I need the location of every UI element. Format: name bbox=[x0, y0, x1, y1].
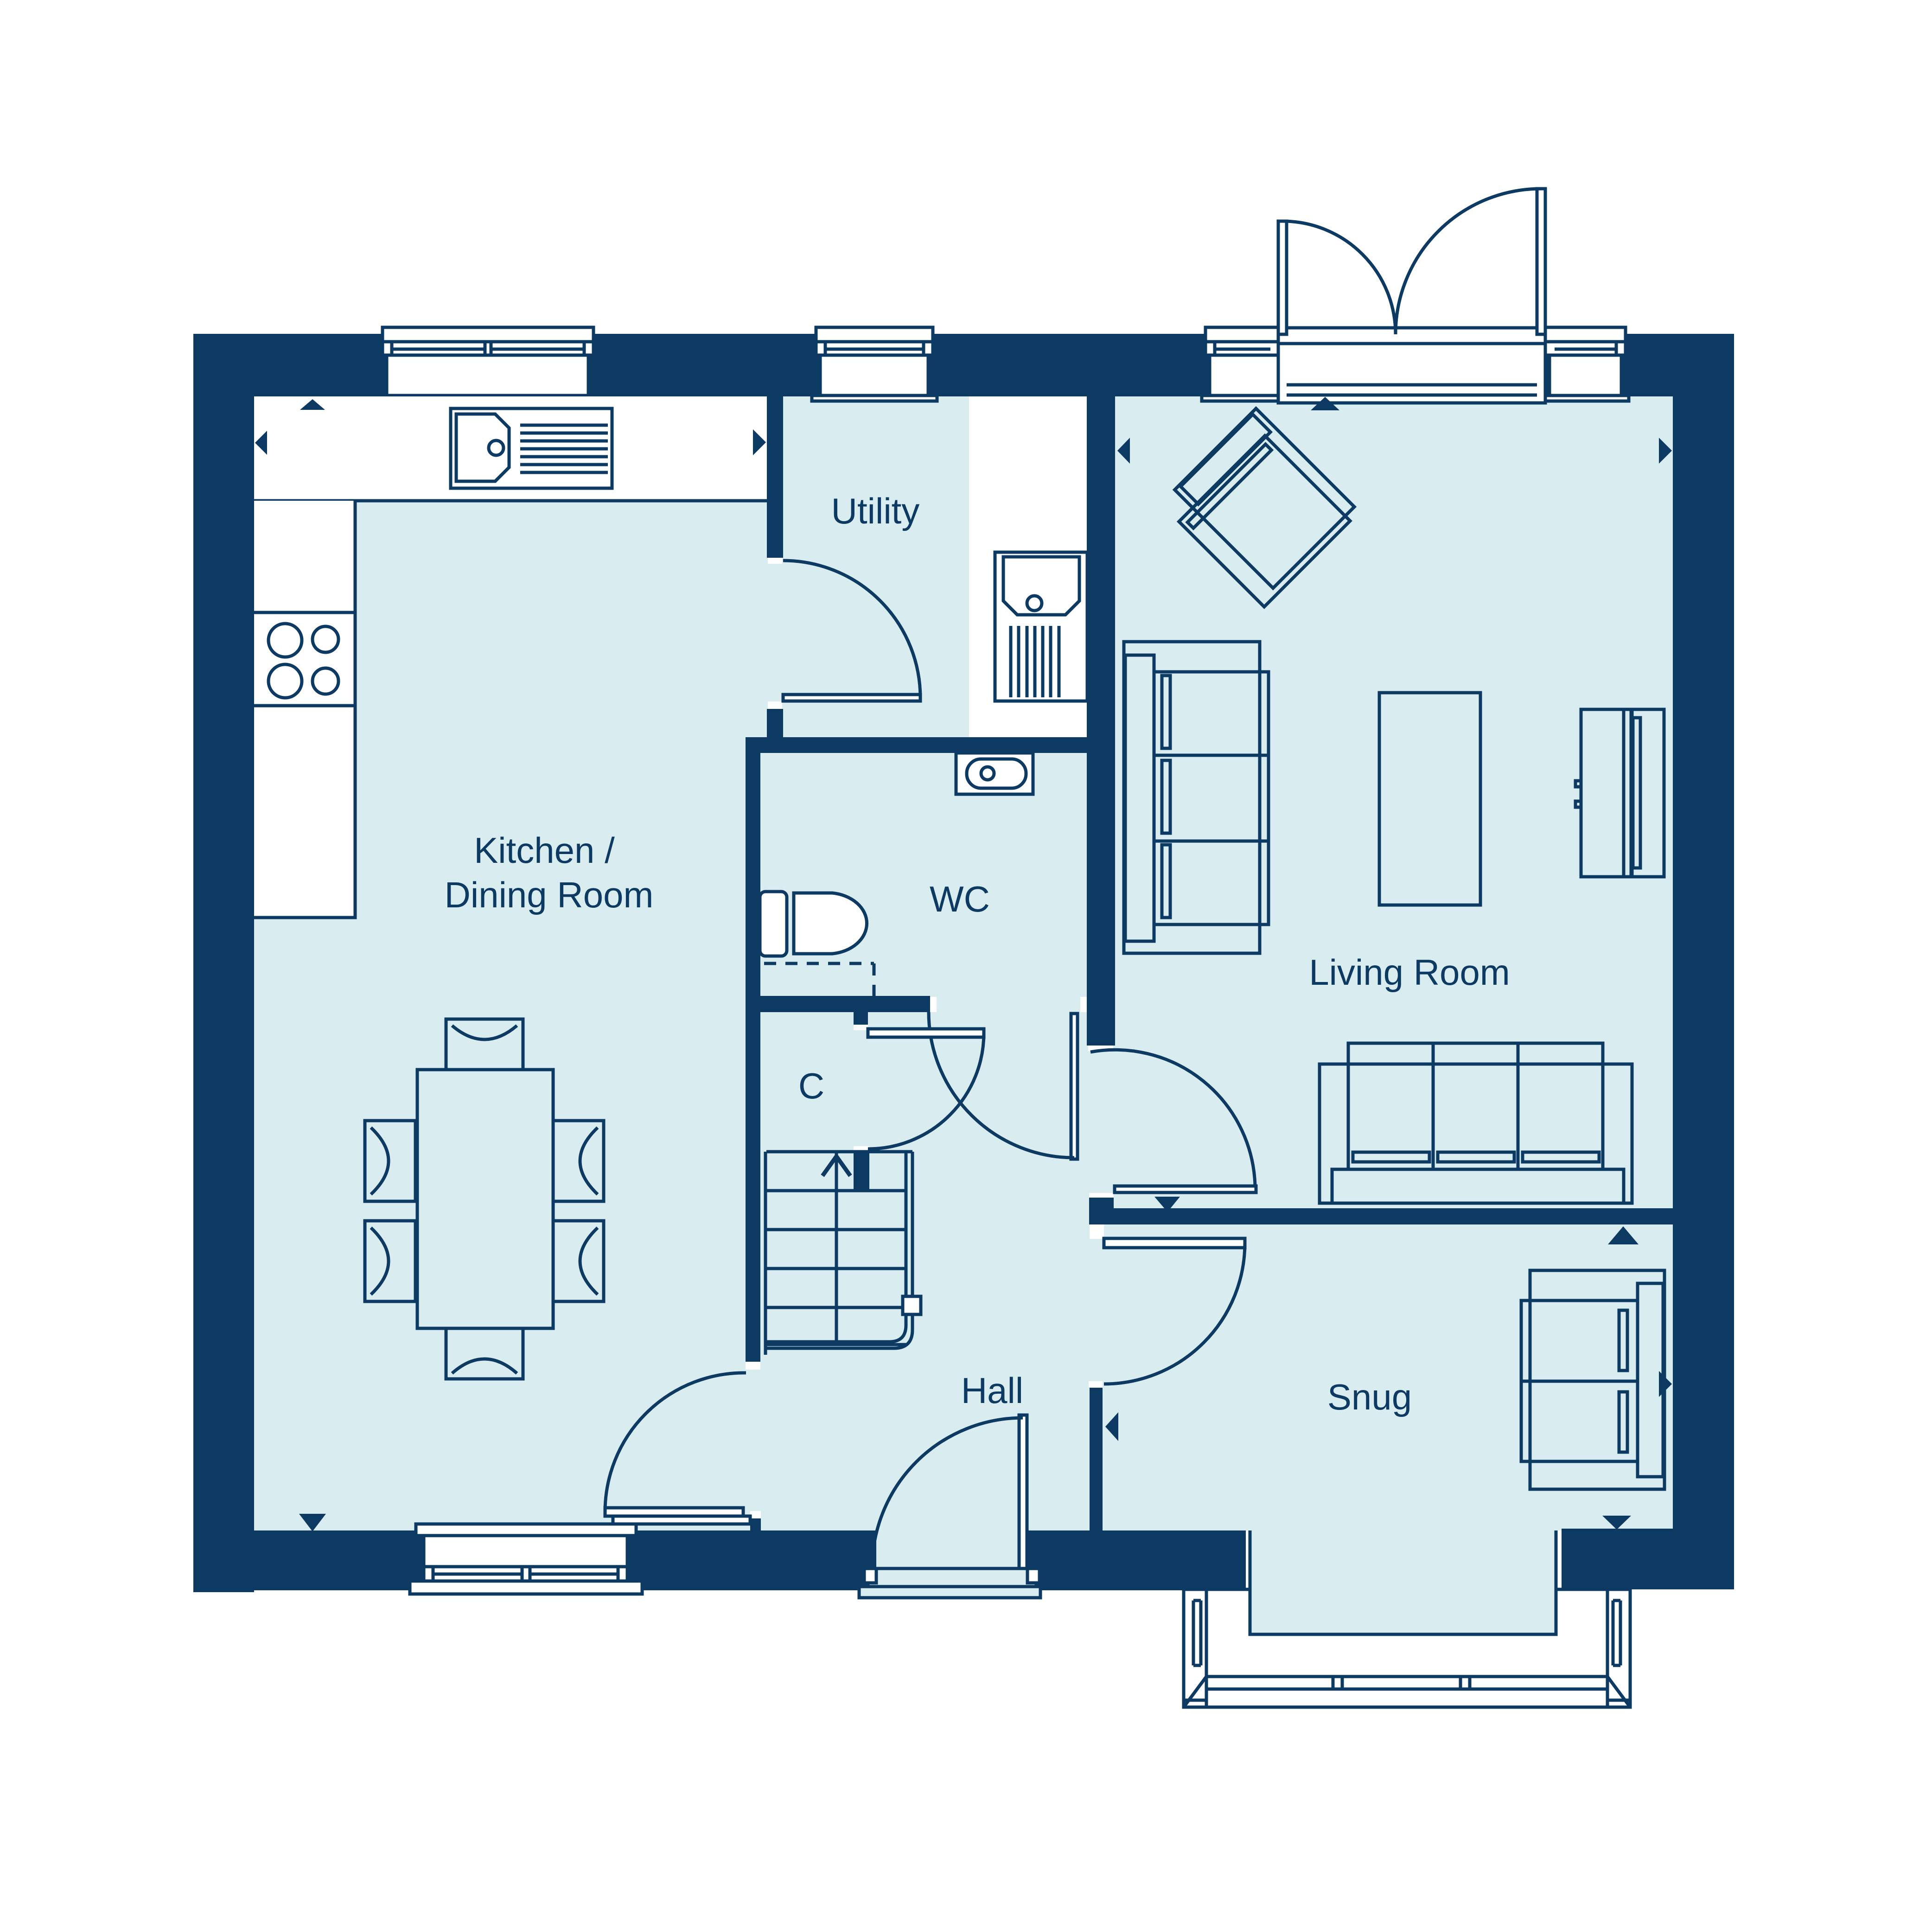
svg-text:WC: WC bbox=[930, 879, 990, 919]
svg-text:C: C bbox=[798, 1065, 824, 1106]
svg-text:Living Room: Living Room bbox=[1309, 952, 1510, 993]
svg-text:Utility: Utility bbox=[831, 491, 920, 531]
svg-text:Hall: Hall bbox=[961, 1370, 1023, 1411]
svg-text:Dining Room: Dining Room bbox=[445, 874, 654, 915]
svg-text:Snug: Snug bbox=[1327, 1377, 1412, 1417]
svg-text:Kitchen /: Kitchen / bbox=[474, 830, 615, 871]
